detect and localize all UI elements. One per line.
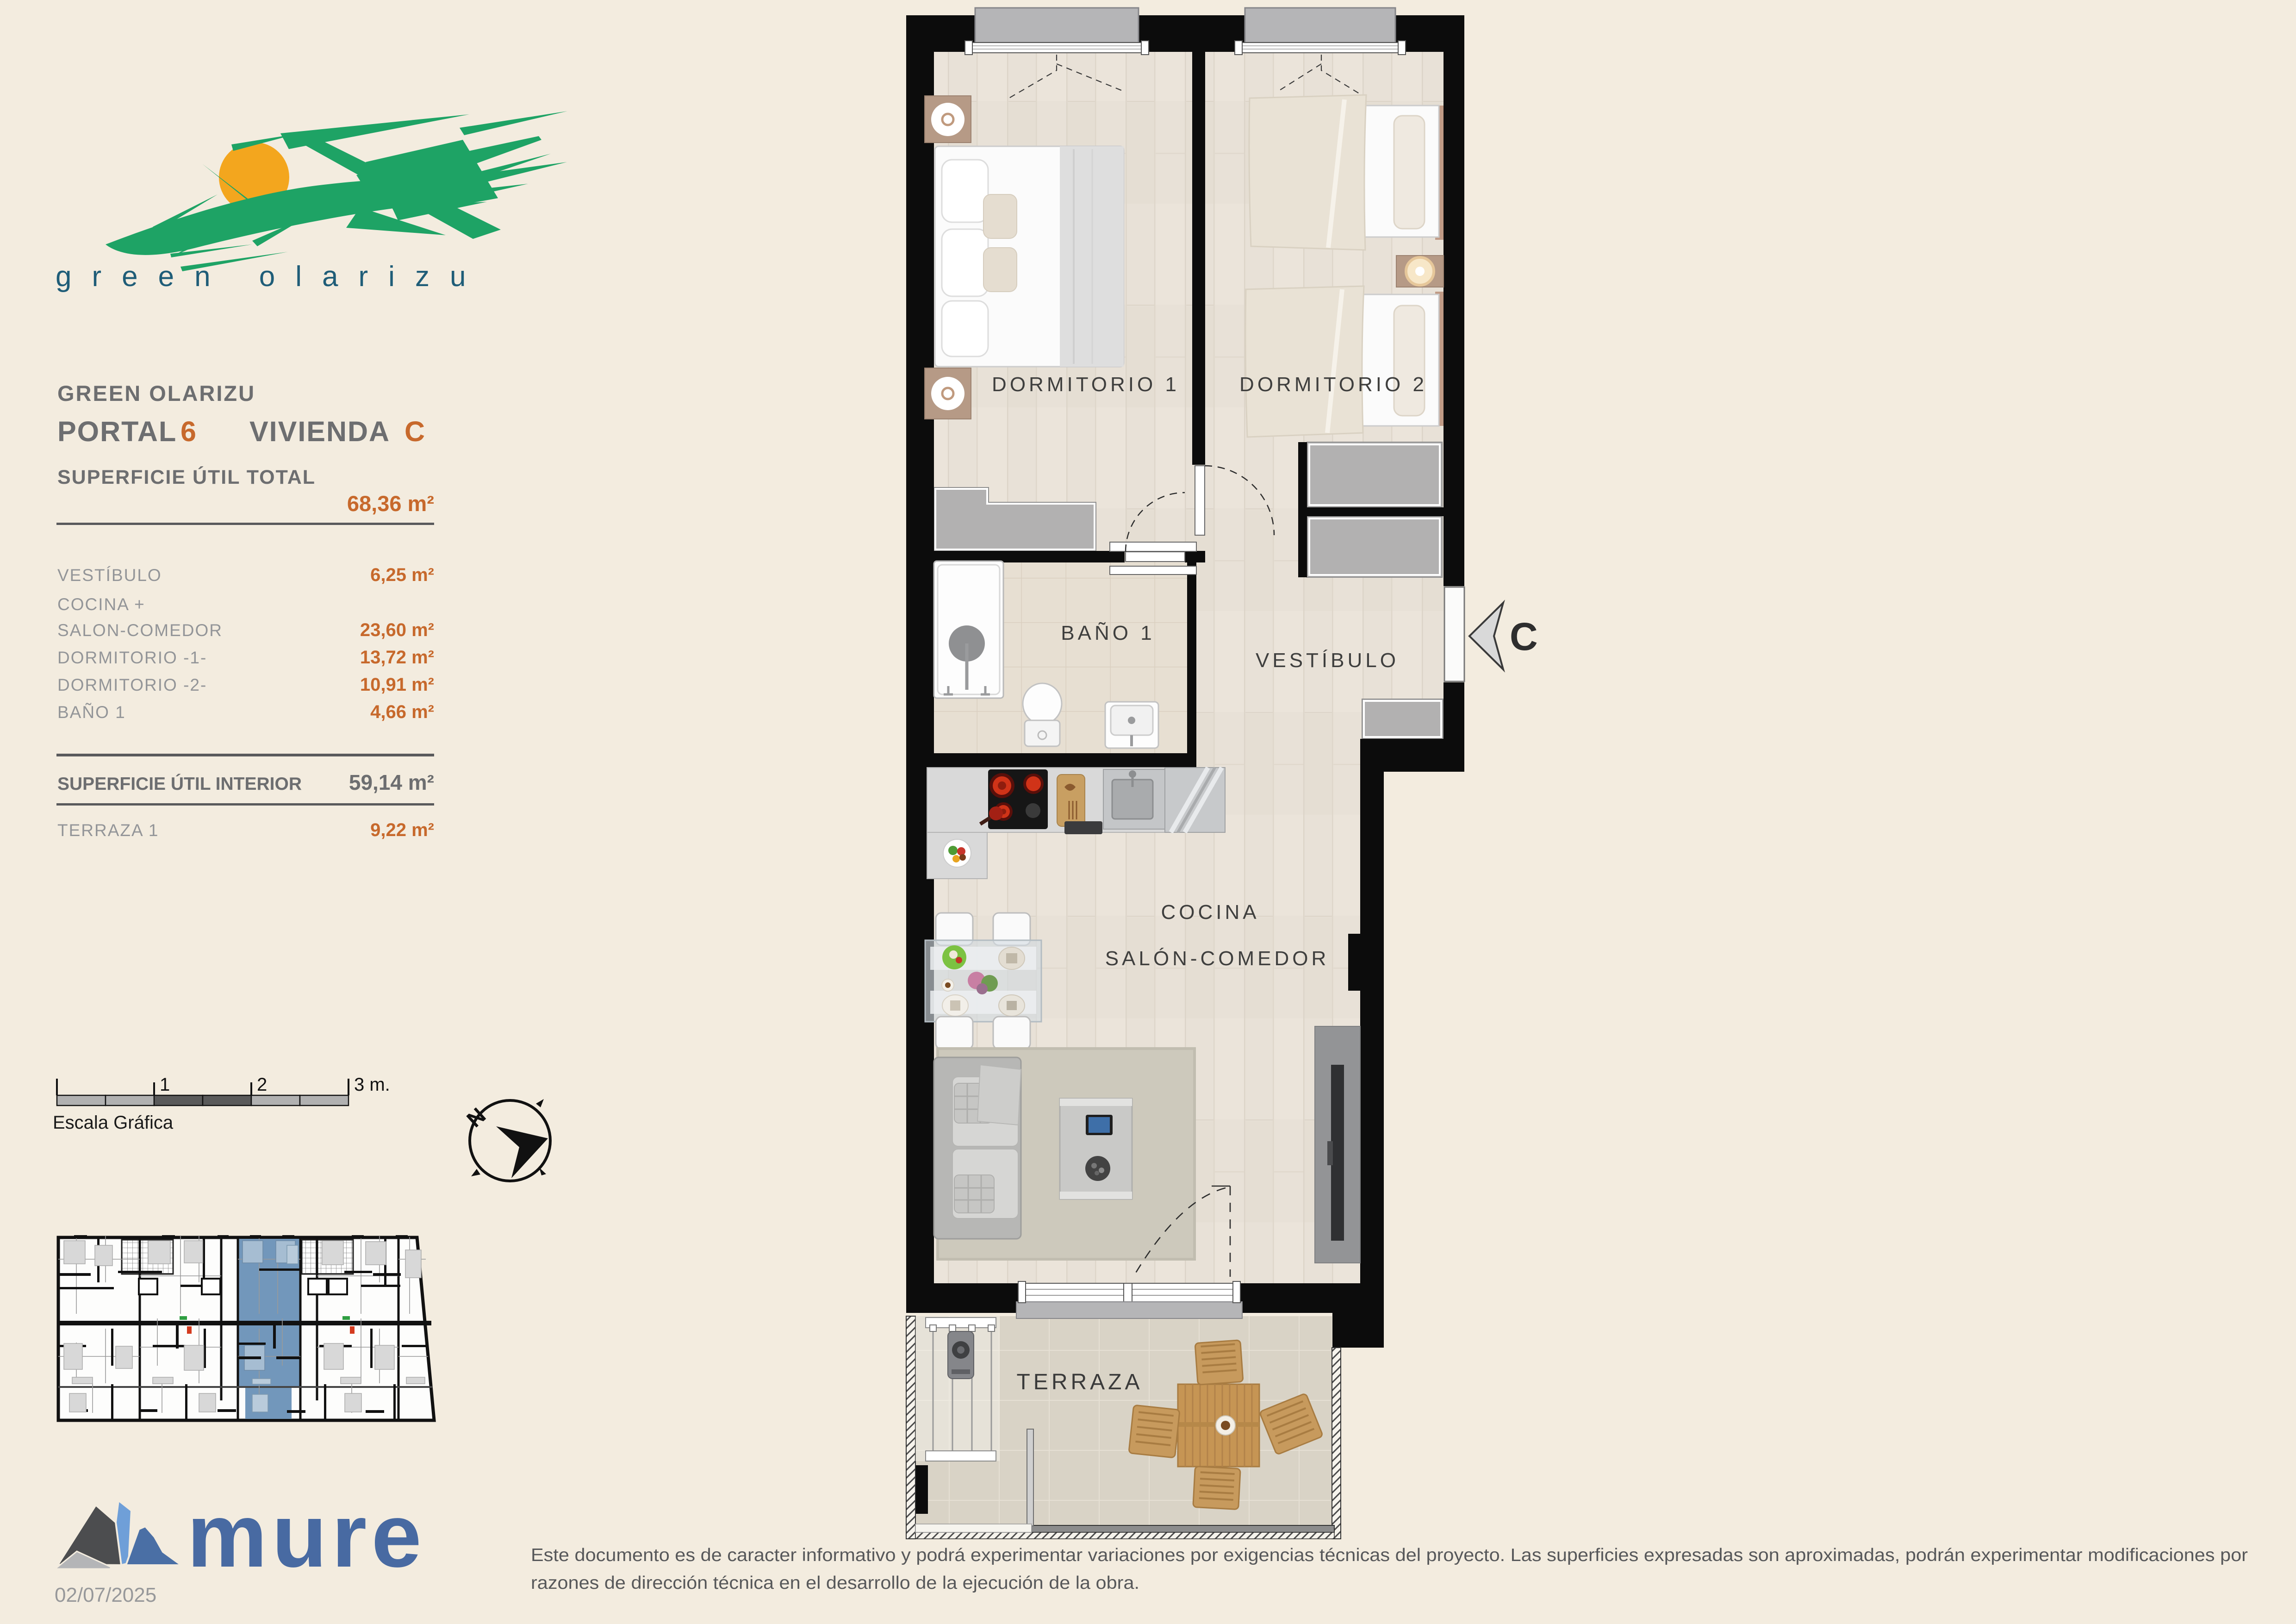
svg-text:COCINA +: COCINA + (57, 595, 145, 614)
svg-text:10,91 m²: 10,91 m² (360, 675, 434, 695)
svg-text:68,36 m²: 68,36 m² (347, 491, 434, 516)
svg-text:SUPERFICIE ÚTIL INTERIOR: SUPERFICIE ÚTIL INTERIOR (57, 774, 302, 794)
svg-text:razones de dirección técnica e: razones de dirección técnica en el desar… (531, 1573, 1139, 1593)
svg-text:VESTÍBULO: VESTÍBULO (57, 566, 162, 585)
svg-text:SALON-COMEDOR: SALON-COMEDOR (57, 621, 223, 640)
svg-text:DORMITORIO -2-: DORMITORIO -2- (57, 675, 207, 694)
svg-text:VESTÍBULO: VESTÍBULO (1256, 649, 1399, 672)
svg-text:1: 1 (160, 1074, 170, 1095)
svg-text:DORMITORIO 1: DORMITORIO 1 (992, 373, 1180, 396)
svg-text:SALÓN-COMEDOR: SALÓN-COMEDOR (1105, 947, 1330, 970)
svg-text:Escala Gráfica: Escala Gráfica (53, 1112, 174, 1133)
svg-text:Este documento es de caracter: Este documento es de caracter informativ… (531, 1545, 2248, 1565)
svg-text:59,14 m²: 59,14 m² (349, 770, 434, 794)
svg-text:TERRAZA: TERRAZA (1016, 1370, 1143, 1394)
svg-text:TERRAZA 1: TERRAZA 1 (57, 821, 159, 840)
svg-text:BAÑO 1: BAÑO 1 (1061, 621, 1155, 644)
svg-text:DORMITORIO 2: DORMITORIO 2 (1239, 373, 1427, 396)
svg-text:DORMITORIO -1-: DORMITORIO -1- (57, 648, 207, 667)
svg-text:02/07/2025: 02/07/2025 (55, 1584, 156, 1606)
svg-text:C: C (1510, 615, 1538, 658)
svg-text:GREEN OLARIZU: GREEN OLARIZU (57, 381, 255, 406)
svg-text:BAÑO 1: BAÑO 1 (57, 703, 126, 722)
svg-text:9,22 m²: 9,22 m² (370, 820, 434, 840)
svg-text:6,25 m²: 6,25 m² (370, 565, 434, 585)
svg-text:3 m.: 3 m. (354, 1074, 390, 1095)
svg-text:SUPERFICIE ÚTIL TOTAL: SUPERFICIE ÚTIL TOTAL (57, 466, 316, 488)
svg-text:13,72 m²: 13,72 m² (360, 647, 434, 668)
svg-text:23,60 m²: 23,60 m² (360, 620, 434, 640)
svg-text:green olarizu: green olarizu (56, 261, 486, 293)
svg-text:COCINA: COCINA (1161, 901, 1259, 924)
svg-text:2: 2 (257, 1074, 267, 1095)
svg-text:mure: mure (187, 1485, 426, 1586)
svg-text:4,66 m²: 4,66 m² (370, 702, 434, 722)
